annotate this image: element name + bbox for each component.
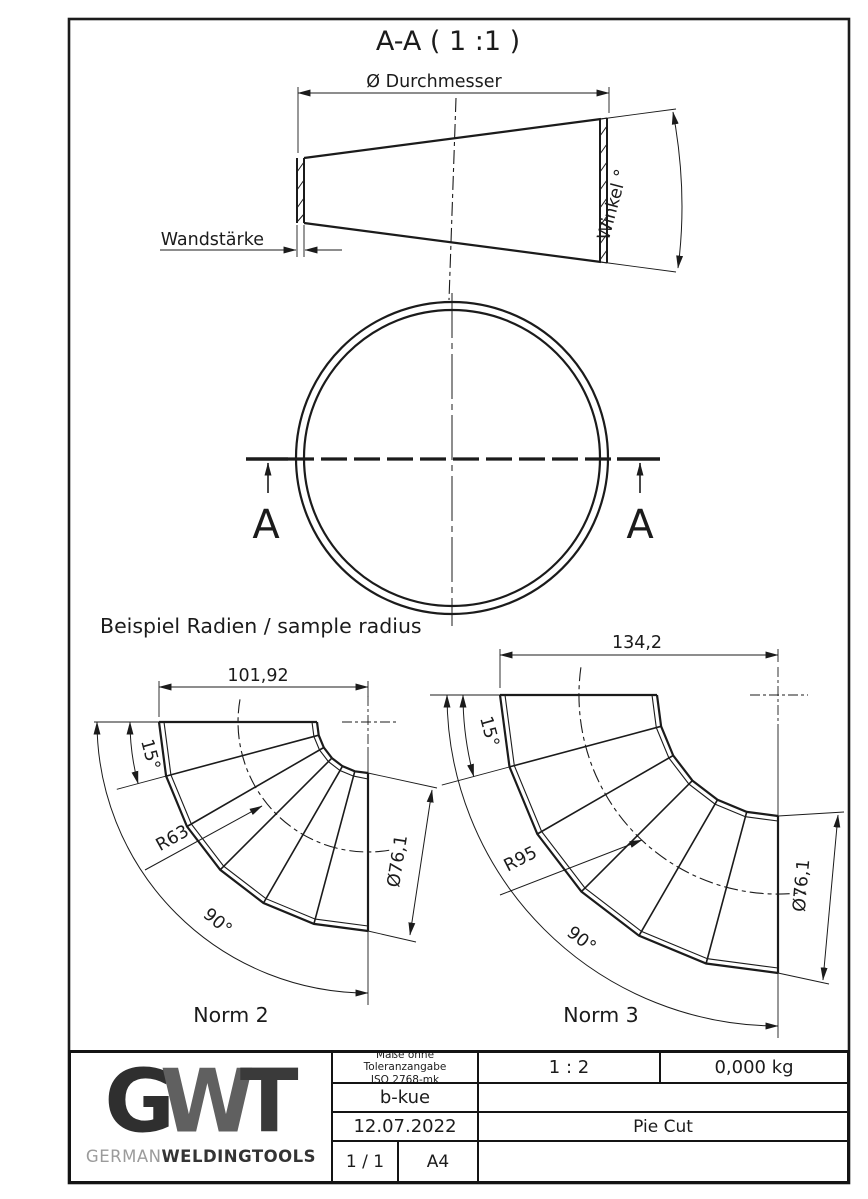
logo-letter-t: T <box>240 1052 284 1153</box>
format-value: A4 <box>427 1152 449 1172</box>
norm3-radius-label: R95 <box>501 843 541 876</box>
segment-angle-arc <box>130 722 138 784</box>
gwt-logo: GWT <box>104 1063 283 1142</box>
title-block: GWT GERMANWELDINGTOOLS Maße ohne Toleran… <box>68 1050 850 1184</box>
date-value: 12.07.2022 <box>353 1116 456 1137</box>
author-cell: b-kue <box>332 1083 478 1112</box>
norm3-view: 134,2 R95 15° 90° Ø76,1 Norm <box>430 633 844 1038</box>
sheet-cell: 1 / 1 <box>332 1141 398 1182</box>
hatch <box>600 162 607 172</box>
drawing-canvas: A-A ( 1 :1 ) Ø Durchmesser Wandstärk <box>0 0 868 1199</box>
cap <box>600 262 607 263</box>
wall-thickness-label: Wandstärke <box>161 230 264 250</box>
section-view: A-A ( 1 :1 ) Ø Durchmesser Wandstärk <box>160 26 682 300</box>
ext-line <box>368 931 416 942</box>
empty-cell-1 <box>478 1083 848 1112</box>
sheet-frame <box>69 19 849 1183</box>
section-marker-left: A <box>252 502 280 548</box>
section-marker-right: A <box>626 502 654 548</box>
tolerance-cell: Maße ohne Toleranzangabe ISO 2768-mk <box>332 1052 478 1083</box>
sheet-value: 1 / 1 <box>346 1152 384 1172</box>
tolerance-line2: ISO 2768-mk <box>371 1074 439 1083</box>
weight-cell: 0,000 kg <box>660 1052 848 1083</box>
ext-line <box>778 973 829 984</box>
logo-letter-w: W <box>160 1052 240 1153</box>
cap <box>600 118 607 119</box>
norm2-view: 101,92 R63 15° 90° Ø76,1 Nor <box>94 666 437 1027</box>
hatch <box>600 126 607 136</box>
samples-heading: Beispiel Radien / sample radius <box>100 614 422 638</box>
scale-cell: 1 : 2 <box>478 1052 660 1083</box>
weight-value: 0,000 kg <box>714 1057 793 1078</box>
hatch <box>600 144 607 154</box>
drawing-sheet: A-A ( 1 :1 ) Ø Durchmesser Wandstärk <box>0 0 868 1199</box>
norm2-angle-dim: 15° <box>136 737 163 772</box>
empty-cell-2 <box>478 1141 848 1182</box>
dim-line <box>823 815 838 980</box>
ext-line <box>778 812 844 816</box>
norm2-arc-dim: 90° <box>199 905 236 940</box>
date-cell: 12.07.2022 <box>332 1112 478 1141</box>
edge-extension <box>601 109 676 119</box>
segment-angle-arc <box>463 695 474 777</box>
norm2-width-dim: 101,92 <box>227 666 288 686</box>
ext-line <box>442 767 510 785</box>
author-value: b-kue <box>380 1087 430 1108</box>
norm2-pipe-dia-dim: Ø76,1 <box>384 834 412 889</box>
logo-cell: GWT GERMANWELDINGTOOLS <box>70 1052 332 1182</box>
cone-top-edge <box>304 119 601 158</box>
norm3-name: Norm 3 <box>563 1003 638 1027</box>
dim-line <box>410 790 432 935</box>
hatch <box>297 180 304 190</box>
hatch <box>600 180 607 190</box>
norm3-width-dim: 134,2 <box>612 633 662 653</box>
top-view: A A <box>246 293 660 626</box>
diameter-label: Ø Durchmesser <box>366 72 502 92</box>
ext-line <box>368 773 437 788</box>
logo-letter-g: G <box>104 1052 160 1153</box>
norm3-arc-dim: 90° <box>563 923 600 958</box>
hatch <box>297 214 304 222</box>
ext-line <box>117 776 166 789</box>
scale-value: 1 : 2 <box>549 1057 589 1078</box>
edge-extension <box>601 262 676 272</box>
norm2-name: Norm 2 <box>193 1003 268 1027</box>
angle-dim-arc <box>673 112 682 268</box>
cone-bottom-edge <box>304 223 601 262</box>
norm3-angle-dim: 15° <box>475 714 502 749</box>
norm3-pipe-dia-dim: Ø76,1 <box>790 858 815 912</box>
format-cell: A4 <box>398 1141 478 1182</box>
hatch <box>600 250 607 260</box>
hatch <box>297 198 304 208</box>
tolerance-line1: Maße ohne Toleranzangabe <box>333 1052 477 1074</box>
hatch <box>297 162 304 172</box>
part-name-cell: Pie Cut <box>478 1112 848 1141</box>
part-name: Pie Cut <box>633 1117 693 1137</box>
section-title: A-A ( 1 :1 ) <box>376 26 520 57</box>
miter-centerline <box>449 98 456 300</box>
